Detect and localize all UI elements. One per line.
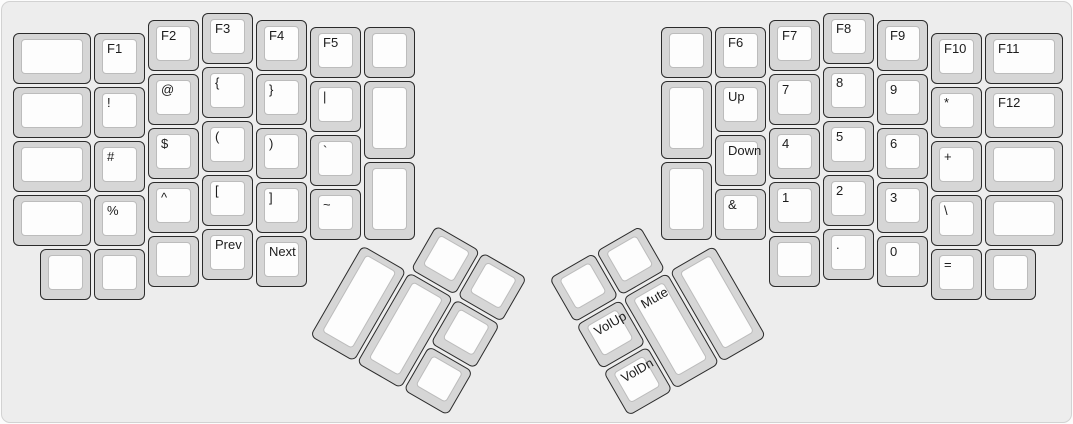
key-f11[interactable]: F11 (985, 33, 1063, 84)
keytop: [ (210, 181, 245, 216)
key-blank[interactable] (94, 249, 145, 300)
keytop (21, 147, 83, 182)
key-label: ) (269, 136, 296, 151)
keytop: 2 (831, 181, 866, 216)
keytop: & (723, 195, 758, 230)
key-f1[interactable]: F1 (94, 33, 145, 84)
key-label: & (728, 197, 755, 212)
key-label (436, 359, 459, 373)
keytop: Up (723, 87, 758, 122)
key-f3[interactable]: F3 (202, 13, 253, 64)
key-f5[interactable]: F5 (310, 27, 361, 78)
key-label: \ (944, 203, 971, 218)
key-f2[interactable]: F2 (148, 20, 199, 71)
key-left-paren[interactable]: ( (202, 121, 253, 172)
keytop: 4 (777, 134, 812, 169)
key-at[interactable]: @ (148, 74, 199, 125)
key-label: 2 (836, 183, 863, 198)
keytop: F10 (939, 39, 974, 74)
key-blank[interactable] (364, 81, 415, 159)
key-left-brace[interactable]: { (202, 67, 253, 118)
keytop: 5 (831, 127, 866, 162)
keytop: * (939, 93, 974, 128)
key-3[interactable]: 3 (877, 182, 928, 233)
key-next-track[interactable]: Next (256, 236, 307, 287)
key-label: F7 (782, 28, 809, 43)
key-label: 8 (836, 75, 863, 90)
keytop: F4 (264, 26, 299, 61)
keytop (669, 33, 704, 68)
key-ampersand[interactable]: & (715, 189, 766, 240)
key-label (463, 313, 486, 327)
key-label: 1 (782, 190, 809, 205)
key-up[interactable]: Up (715, 81, 766, 132)
key-f4[interactable]: F4 (256, 20, 307, 71)
keytop (21, 39, 83, 74)
key-4[interactable]: 4 (769, 128, 820, 179)
key-label: 3 (890, 190, 917, 205)
keytop: 1 (777, 188, 812, 223)
keytop: Down (723, 141, 758, 176)
keytop: 8 (831, 73, 866, 108)
keytop: F6 (723, 33, 758, 68)
keytop (372, 33, 407, 68)
key-plus[interactable]: + (931, 141, 982, 192)
keytop: Next (264, 242, 299, 277)
key-hash[interactable]: # (94, 141, 145, 192)
keytop: ^ (156, 188, 191, 223)
key-label: Mute (638, 285, 669, 311)
keytop: { (210, 73, 245, 108)
key-blank[interactable] (40, 249, 91, 300)
key-label: @ (161, 82, 188, 97)
keytop: ) (264, 134, 299, 169)
keytop: ] (264, 188, 299, 223)
keytop: F7 (777, 26, 812, 61)
key-2[interactable]: 2 (823, 175, 874, 226)
keytop: 7 (777, 80, 812, 115)
key-f7[interactable]: F7 (769, 20, 820, 71)
keytop (993, 255, 1028, 290)
keytop (415, 355, 463, 403)
key-label: F4 (269, 28, 296, 43)
key-blank[interactable] (13, 141, 91, 192)
key-prev-track[interactable]: Prev (202, 229, 253, 280)
key-blank[interactable] (13, 195, 91, 246)
keytop (423, 235, 471, 283)
key-label: F6 (728, 35, 755, 50)
key-f12[interactable]: F12 (985, 87, 1063, 138)
keytop (559, 262, 607, 310)
keytop (21, 201, 83, 236)
keytop: # (102, 147, 137, 182)
key-label: ^ (161, 190, 188, 205)
keytop (102, 255, 137, 290)
keytop: 0 (885, 242, 920, 277)
key-label: ] (269, 190, 296, 205)
keytop: ` (318, 141, 353, 176)
keytop (442, 308, 490, 356)
key-label: . (836, 237, 863, 252)
keytop: $ (156, 134, 191, 169)
key-pipe[interactable]: | (310, 81, 361, 132)
key-label (564, 265, 587, 279)
key-right-brace[interactable]: } (256, 74, 307, 125)
key-dollar[interactable]: $ (148, 128, 199, 179)
key-label: F3 (215, 21, 242, 36)
key-label: } (269, 82, 296, 97)
key-label: VolUp (591, 312, 622, 338)
keytop: 9 (885, 80, 920, 115)
key-blank[interactable] (148, 236, 199, 287)
key-label: 9 (890, 82, 917, 97)
key-label: Next (269, 244, 296, 259)
key-f8[interactable]: F8 (823, 13, 874, 64)
keytop: 3 (885, 188, 920, 223)
keytop (48, 255, 83, 290)
key-label: 0 (890, 244, 917, 259)
keytop (21, 93, 83, 128)
key-label: 7 (782, 82, 809, 97)
keytop: F9 (885, 26, 920, 61)
key-right-bracket[interactable]: ] (256, 182, 307, 233)
key-label: ( (215, 129, 242, 144)
keytop (669, 87, 704, 149)
keytop (777, 242, 812, 277)
keytop (606, 235, 654, 283)
key-backtick[interactable]: ` (310, 135, 361, 186)
key-label: = (944, 257, 971, 272)
key-blank[interactable] (13, 33, 91, 84)
key-backslash[interactable]: \ (931, 195, 982, 246)
key-label: 5 (836, 129, 863, 144)
key-label: $ (161, 136, 188, 151)
key-label: ` (323, 143, 350, 158)
key-tilde[interactable]: ~ (310, 189, 361, 240)
key-blank[interactable] (985, 141, 1063, 192)
key-label: # (107, 149, 134, 164)
key-label: [ (215, 183, 242, 198)
key-blank[interactable] (661, 27, 712, 78)
keytop (993, 201, 1055, 236)
keytop (156, 242, 191, 277)
keytop: F3 (210, 19, 245, 54)
key-blank[interactable] (769, 236, 820, 287)
key-label (443, 239, 466, 253)
key-label: { (215, 75, 242, 90)
key-label: ! (107, 95, 134, 110)
keytop: = (939, 255, 974, 290)
key-5[interactable]: 5 (823, 121, 874, 172)
key-label: ~ (323, 197, 350, 212)
key-asterisk[interactable]: * (931, 87, 982, 138)
key-label: F10 (944, 41, 971, 56)
key-label: VolDn (618, 359, 649, 385)
key-label: F11 (998, 41, 1052, 56)
key-0[interactable]: 0 (877, 236, 928, 287)
key-label: 6 (890, 136, 917, 151)
key-label: F1 (107, 41, 134, 56)
keytop: 6 (885, 134, 920, 169)
key-9[interactable]: 9 (877, 74, 928, 125)
key-label: | (323, 89, 350, 104)
key-label: % (107, 203, 134, 218)
key-label: * (944, 95, 971, 110)
key-percent[interactable]: % (94, 195, 145, 246)
key-label: 4 (782, 136, 809, 151)
key-7[interactable]: 7 (769, 74, 820, 125)
keytop: | (318, 87, 353, 122)
keytop: % (102, 201, 137, 236)
key-label: F8 (836, 21, 863, 36)
key-blank[interactable] (364, 27, 415, 78)
keytop: @ (156, 80, 191, 115)
key-blank[interactable] (985, 195, 1063, 246)
keytop: F5 (318, 33, 353, 68)
key-label (416, 286, 439, 300)
keytop: ~ (318, 195, 353, 230)
key-label (370, 259, 393, 273)
keytop: Prev (210, 235, 245, 270)
keytop (993, 147, 1055, 182)
key-period[interactable]: . (823, 229, 874, 280)
key-label: F12 (998, 95, 1052, 110)
key-6[interactable]: 6 (877, 128, 928, 179)
key-label: Down (728, 143, 755, 158)
keytop: ! (102, 93, 137, 128)
keytop: VolDn (613, 356, 661, 404)
keytop (469, 262, 517, 310)
keytop (372, 87, 407, 149)
key-1[interactable]: 1 (769, 182, 820, 233)
keytop: } (264, 80, 299, 115)
key-f6[interactable]: F6 (715, 27, 766, 78)
keyboard-layout-board: F1F2F3F4F5!@{}|#$()`%^[]~PrevNext F6F7F8… (1, 1, 1072, 423)
key-label: F9 (890, 28, 917, 43)
keytop: VolUp (586, 309, 634, 357)
key-label (490, 266, 513, 280)
key-8[interactable]: 8 (823, 67, 874, 118)
key-label: + (944, 149, 971, 164)
key-equals[interactable]: = (931, 249, 982, 300)
keytop: \ (939, 201, 974, 236)
key-label: Up (728, 89, 755, 104)
keytop: F8 (831, 19, 866, 54)
key-label: F2 (161, 28, 188, 43)
keytop: + (939, 147, 974, 182)
key-down[interactable]: Down (715, 135, 766, 186)
keytop: F1 (102, 39, 137, 74)
key-exclamation[interactable]: ! (94, 87, 145, 138)
key-label (685, 258, 708, 272)
key-label (611, 238, 634, 252)
key-blank[interactable] (661, 81, 712, 159)
key-caret[interactable]: ^ (148, 182, 199, 233)
key-label: F5 (323, 35, 350, 50)
keytop: ( (210, 127, 245, 162)
keytop: F2 (156, 26, 191, 61)
keytop: . (831, 235, 866, 270)
key-right-paren[interactable]: ) (256, 128, 307, 179)
keytop: F11 (993, 39, 1055, 74)
keytop: F12 (993, 93, 1055, 128)
key-left-bracket[interactable]: [ (202, 175, 253, 226)
key-blank[interactable] (13, 87, 91, 138)
key-label: Prev (215, 237, 242, 252)
key-f9[interactable]: F9 (877, 20, 928, 71)
key-blank[interactable] (985, 249, 1036, 300)
key-f10[interactable]: F10 (931, 33, 982, 84)
